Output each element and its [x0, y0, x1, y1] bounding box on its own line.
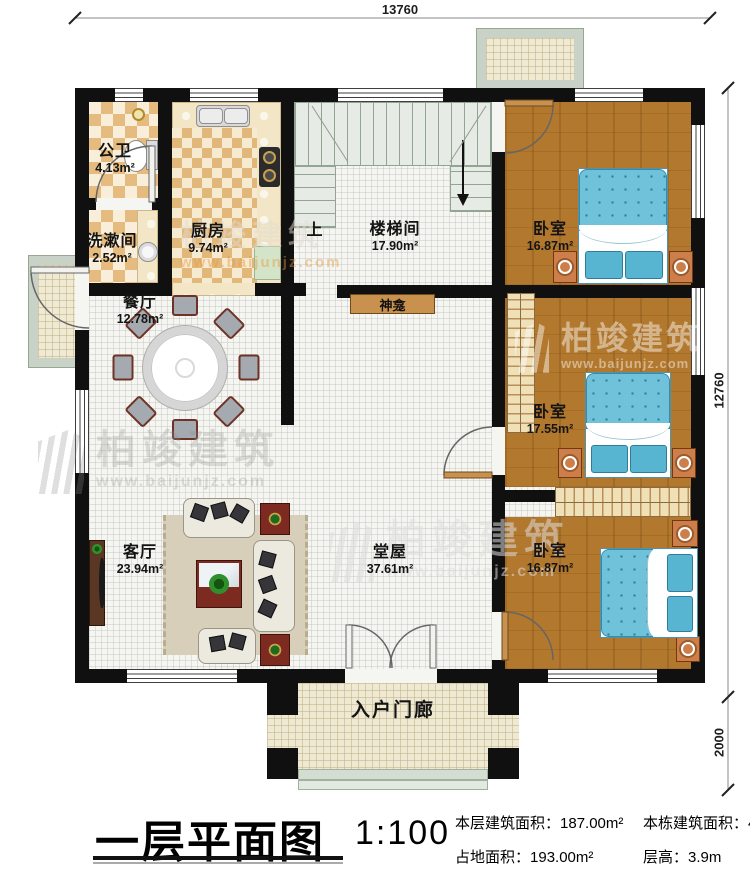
wall-bath-kitchen [158, 102, 172, 296]
door-opening-side-landing [75, 268, 89, 330]
stat-floor-area: 本层建筑面积：187.00m² [455, 812, 625, 833]
nightstand [676, 636, 700, 662]
title-underline [93, 856, 343, 860]
nightstand [669, 251, 693, 283]
room-label-bedroom-bottom: 卧室16.87m² [515, 542, 585, 576]
dining-chair [172, 419, 198, 440]
porch-floor [267, 683, 519, 769]
wardrobe-horizontal [555, 487, 691, 517]
dining-chair [113, 355, 134, 381]
dining-chair [239, 355, 260, 381]
pillow [667, 596, 693, 632]
dim-right-porch-label: 2000 [712, 718, 727, 768]
porch-step-2 [298, 780, 488, 790]
burner-2 [263, 169, 276, 182]
sink-basin-right [224, 108, 248, 124]
nightstand [672, 448, 696, 478]
mattress [601, 549, 653, 637]
wall-left [75, 88, 89, 683]
nightstand [558, 448, 582, 478]
sofa-pillow [209, 635, 226, 652]
sofa-bottom [198, 628, 256, 664]
door-opening-bedroom-mid [492, 427, 505, 475]
porch-step-1 [298, 769, 488, 780]
pillow [667, 554, 693, 592]
window-bedroom-bottom [548, 669, 657, 683]
stat-footprint-area: 占地面积：193.00m² [455, 846, 625, 867]
plan-title: 一层平面图 [95, 806, 325, 870]
top-balcony-floor [486, 38, 574, 80]
pillow [585, 251, 623, 279]
shrine-shelf: 神龛 [350, 294, 435, 314]
stair-flight-left [294, 166, 336, 228]
window-stairwell-top [338, 88, 443, 102]
pillow [591, 445, 628, 473]
title-stats: 本层建筑面积：187.00m² 本栋建筑面积：484.81m² 占地面积：193… [455, 812, 750, 867]
mattress [586, 373, 670, 429]
room-label-dining: 餐厅12.78m² [105, 293, 175, 327]
stat-building-area: 本栋建筑面积：484.81m² [643, 812, 750, 833]
door-opening-bathroom [96, 198, 152, 210]
dining-chair [172, 295, 198, 316]
end-table-plant [268, 512, 282, 526]
dining-table [143, 326, 227, 410]
bed-sheet [579, 225, 667, 244]
porch-pillar-br [488, 748, 519, 779]
room-label-washroom: 洗漱间2.52m² [72, 232, 152, 266]
mattress [579, 169, 667, 231]
coffee-table [196, 560, 242, 608]
room-label-living: 客厅23.94m² [105, 543, 175, 577]
title-underline-thin [93, 862, 343, 864]
room-label-porch: 入户门廊 [267, 700, 519, 723]
kitchen-rack [254, 246, 281, 280]
room-label-hall: 堂屋37.61m² [355, 543, 425, 577]
bed-sheet [647, 549, 664, 637]
end-table-top [260, 503, 290, 535]
window-bedroom-top [575, 88, 643, 102]
porch-pillar-bl [267, 748, 298, 779]
dim-top-label: 13760 [370, 2, 430, 17]
bed-bottom [600, 548, 698, 638]
cabinet-plant [91, 543, 103, 555]
kitchen-floor [172, 128, 257, 283]
dining-table-center [175, 358, 195, 378]
bed-top [578, 168, 668, 284]
window-living-bottom [127, 669, 237, 683]
room-label-stairwell: 楼梯间17.90m² [345, 220, 445, 254]
wall-stair-left [281, 102, 294, 425]
window-bathroom-top [115, 88, 143, 102]
pillow [625, 251, 663, 279]
pillow [630, 445, 667, 473]
room-label-bathroom: 公卫4.13m² [80, 142, 150, 176]
stairs-up-label: 上 [300, 221, 330, 240]
stair-flight-top [294, 102, 492, 166]
floor-plan-canvas: 神龛 [0, 0, 750, 873]
sink-basin-left [199, 108, 223, 124]
window-bedroom-mid-right [691, 288, 705, 375]
bed-sheet [586, 423, 670, 440]
end-table-bottom [260, 634, 290, 666]
window-dining-left [75, 390, 89, 473]
stove [259, 147, 280, 187]
shrine-label: 神龛 [379, 295, 405, 314]
door-opening-bedroom-bottom [492, 612, 505, 660]
stair-flight-right [450, 166, 492, 212]
kitchen-sink [196, 105, 250, 127]
top-balcony [476, 28, 584, 90]
end-table-plant [268, 643, 282, 657]
entry-door-opening [345, 669, 437, 683]
stat-floor-height: 层高：3.9m [643, 846, 750, 867]
dim-right-main-label: 12760 [712, 361, 727, 421]
bed-mid [585, 372, 671, 478]
door-opening-bedroom-top [492, 102, 505, 152]
wall-bed2-bed3 [505, 490, 557, 502]
room-label-bedroom-mid: 卧室17.55m² [515, 403, 585, 437]
window-bedroom-top-right [691, 125, 705, 218]
wall-corridor [492, 102, 505, 683]
room-label-kitchen: 厨房9.74m² [168, 222, 248, 256]
coffee-table-plant [207, 572, 231, 596]
window-kitchen-top [190, 88, 258, 102]
shower-head-icon [132, 108, 145, 121]
room-label-bedroom-top: 卧室16.87m² [515, 220, 585, 254]
nightstand [672, 520, 698, 547]
plan-scale: 1:100 [355, 814, 450, 853]
nightstand [553, 251, 577, 283]
burner-1 [263, 151, 276, 164]
